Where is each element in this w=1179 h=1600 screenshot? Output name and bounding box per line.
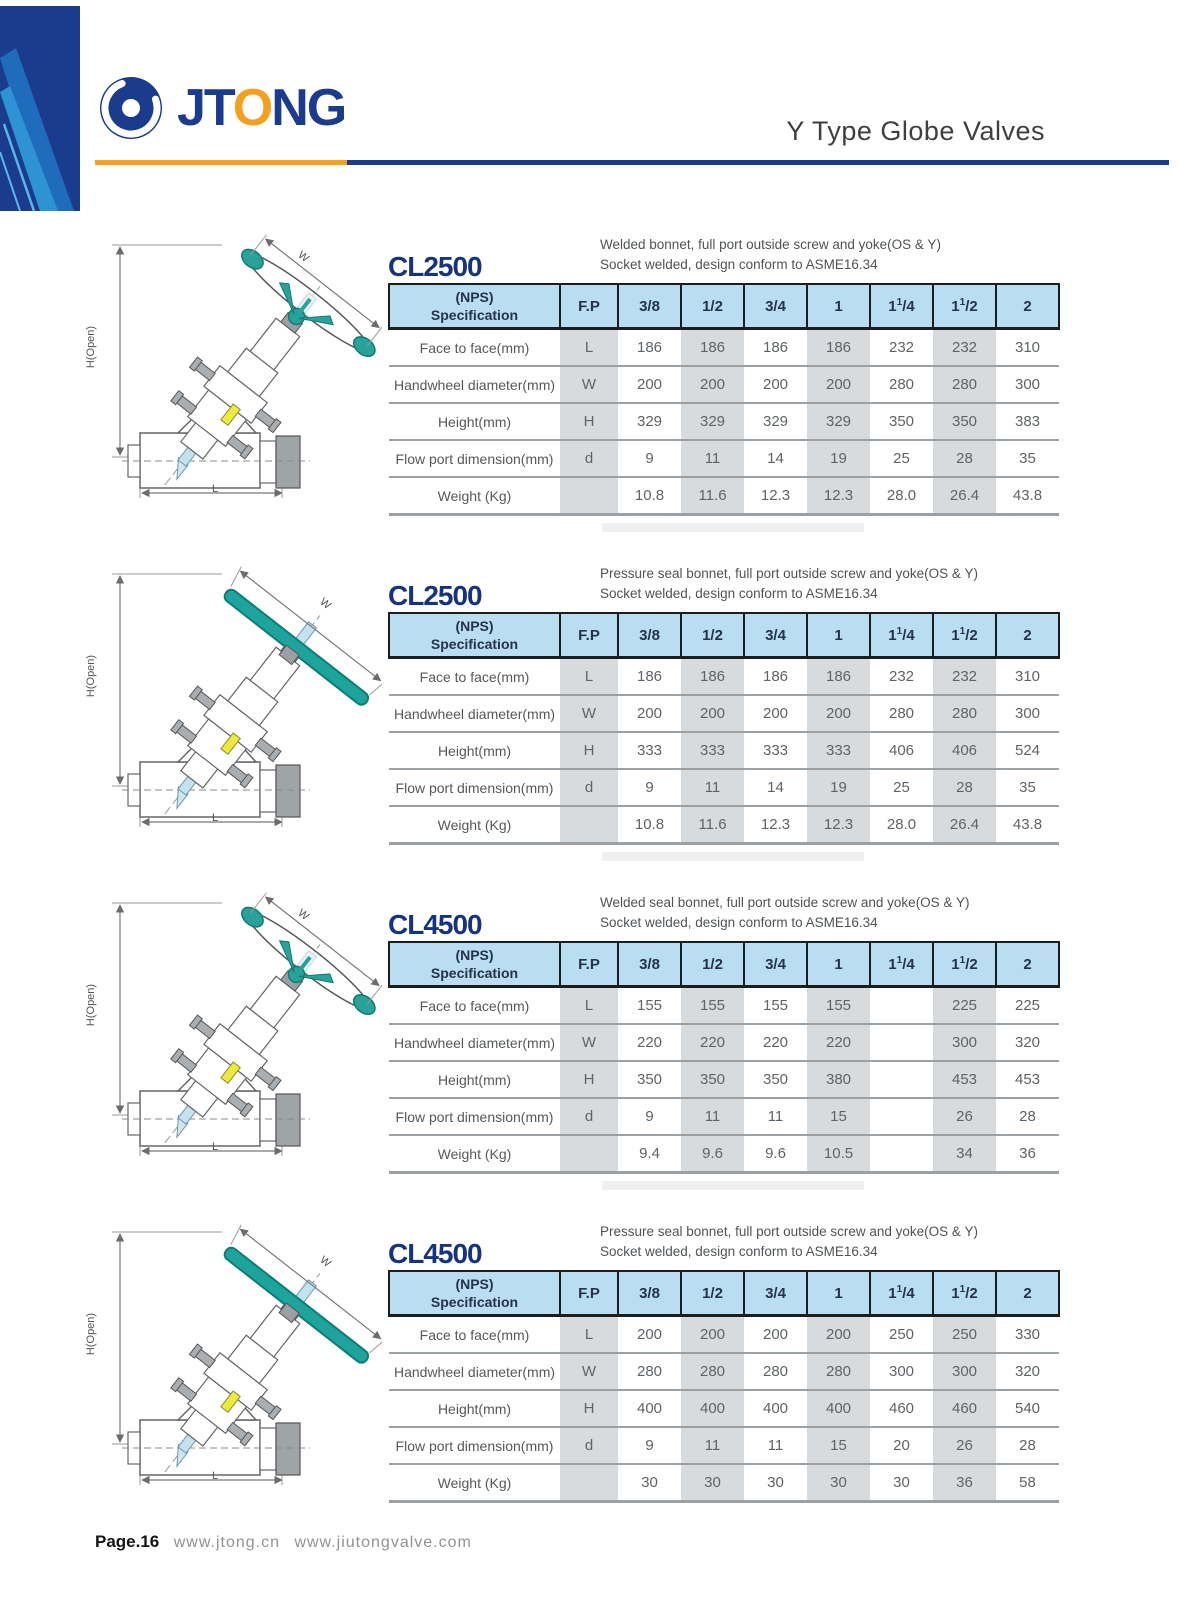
data-cell: 280 <box>870 366 933 403</box>
section-cl2500-pressure-seal: H(Open) L W CL2500 Pressure seal bonnet,… <box>82 534 1097 852</box>
data-cell: 280 <box>807 1353 870 1390</box>
fp-cell: d <box>560 440 618 477</box>
table-row: Flow port dimension(mm)d9111419252835 <box>389 769 1059 806</box>
col-header-size: 11/2 <box>933 284 996 329</box>
model-title: CL2500 <box>388 580 482 612</box>
data-cell: 10.8 <box>618 477 681 515</box>
row-label: Flow port dimension(mm) <box>389 440 560 477</box>
spec-table-wrap: (NPS)SpecificationF.P3/81/23/4111/411/22… <box>388 941 1060 1174</box>
row-label: Weight (Kg) <box>389 1135 560 1173</box>
fp-cell: W <box>560 1024 618 1061</box>
data-cell: 186 <box>807 658 870 696</box>
table-row: Height(mm)H329329329329350350383 <box>389 403 1059 440</box>
page-title: Y Type Globe Valves <box>700 116 1045 147</box>
data-cell: 35 <box>996 440 1059 477</box>
orange-rule <box>95 160 347 165</box>
data-cell: 280 <box>933 366 996 403</box>
row-label: Height(mm) <box>389 1061 560 1098</box>
data-cell: 155 <box>744 987 807 1025</box>
table-row: Handwheel diameter(mm)W20020020020028028… <box>389 695 1059 732</box>
data-cell: 155 <box>681 987 744 1025</box>
fp-cell: H <box>560 1390 618 1427</box>
table-row: Flow port dimension(mm)d9111419252835 <box>389 440 1059 477</box>
corner-stripes-decoration <box>0 6 80 211</box>
row-label: Flow port dimension(mm) <box>389 1098 560 1135</box>
data-cell: 300 <box>933 1024 996 1061</box>
navy-rule <box>347 160 1169 165</box>
row-label: Face to face(mm) <box>389 658 560 696</box>
fp-cell: L <box>560 658 618 696</box>
header-row: (NPS)SpecificationF.P3/81/23/4111/411/22 <box>389 1271 1059 1316</box>
table-row: Flow port dimension(mm)d91111152628 <box>389 1098 1059 1135</box>
description-line-1: Pressure seal bonnet, full port outside … <box>600 1222 978 1242</box>
data-cell: 200 <box>807 366 870 403</box>
data-cell: 333 <box>807 732 870 769</box>
fp-cell: H <box>560 403 618 440</box>
brand-pre: JT <box>177 79 233 137</box>
fp-cell: d <box>560 1098 618 1135</box>
description-line-1: Welded bonnet, full port outside screw a… <box>600 235 941 255</box>
data-cell: 26 <box>933 1098 996 1135</box>
page-footer: Page.16 www.jtong.cn www.jiutongvalve.co… <box>95 1532 472 1552</box>
data-cell <box>870 1098 933 1135</box>
data-cell: 453 <box>933 1061 996 1098</box>
col-header-fp: F.P <box>560 942 618 987</box>
data-cell: 186 <box>618 658 681 696</box>
data-cell: 28.0 <box>870 806 933 844</box>
row-label: Flow port dimension(mm) <box>389 769 560 806</box>
table-row: Handwheel diameter(mm)W22022022022030032… <box>389 1024 1059 1061</box>
table-row: Face to face(mm)L200200200200250250330 <box>389 1316 1059 1354</box>
data-cell: 9 <box>618 769 681 806</box>
data-cell: 200 <box>618 366 681 403</box>
data-cell: 58 <box>996 1464 1059 1502</box>
data-cell: 186 <box>618 329 681 367</box>
fp-cell: L <box>560 1316 618 1354</box>
section-cl4500-pressure-seal: H(Open) L W CL4500 Pressure seal bonnet,… <box>82 1192 1097 1510</box>
data-cell: 9.6 <box>744 1135 807 1173</box>
col-header-size: 2 <box>996 613 1059 658</box>
data-cell: 15 <box>807 1098 870 1135</box>
data-cell: 43.8 <box>996 477 1059 515</box>
table-row: Face to face(mm)L186186186186232232310 <box>389 658 1059 696</box>
dim-label-height: H(Open) <box>85 984 97 1026</box>
spec-table-wrap: (NPS)SpecificationF.P3/81/23/4111/411/22… <box>388 1270 1060 1503</box>
valve-schematic-icon <box>82 205 382 505</box>
data-cell: 28 <box>996 1098 1059 1135</box>
data-cell: 36 <box>996 1135 1059 1173</box>
section-cl4500-welded-seal: H(Open) L W CL4500 Welded seal bonnet, f… <box>82 863 1097 1181</box>
data-cell: 26.4 <box>933 806 996 844</box>
data-cell: 30 <box>618 1464 681 1502</box>
data-cell: 19 <box>807 440 870 477</box>
data-cell: 28.0 <box>870 477 933 515</box>
valve-drawing-handwheel: H(Open) L W <box>82 205 382 505</box>
data-cell: 200 <box>618 695 681 732</box>
data-cell: 320 <box>996 1353 1059 1390</box>
data-cell: 300 <box>996 695 1059 732</box>
data-cell: 25 <box>870 769 933 806</box>
data-cell <box>870 987 933 1025</box>
data-cell: 12.3 <box>744 806 807 844</box>
header-row: (NPS)SpecificationF.P3/81/23/4111/411/22 <box>389 613 1059 658</box>
data-cell: 232 <box>870 329 933 367</box>
fp-cell: L <box>560 987 618 1025</box>
data-cell: 220 <box>744 1024 807 1061</box>
description-line-2: Socket welded, design conform to ASME16.… <box>600 1242 978 1262</box>
data-cell: 28 <box>933 440 996 477</box>
model-title: CL4500 <box>388 1238 482 1270</box>
col-header-size: 1/2 <box>681 284 744 329</box>
data-cell: 9 <box>618 1427 681 1464</box>
row-label: Handwheel diameter(mm) <box>389 366 560 403</box>
table-row: Weight (Kg)10.811.612.312.328.026.443.8 <box>389 806 1059 844</box>
data-cell: 155 <box>807 987 870 1025</box>
data-cell: 34 <box>933 1135 996 1173</box>
data-cell: 200 <box>807 695 870 732</box>
brand-wordmark: JTONG <box>177 82 345 134</box>
data-cell: 11 <box>681 1427 744 1464</box>
fp-cell <box>560 477 618 515</box>
valve-schematic-icon <box>82 1192 382 1492</box>
data-cell: 333 <box>681 732 744 769</box>
data-cell: 300 <box>996 366 1059 403</box>
data-cell: 383 <box>996 403 1059 440</box>
col-header-size: 2 <box>996 942 1059 987</box>
col-header-size: 1/2 <box>681 942 744 987</box>
table-row: Weight (Kg)30303030303658 <box>389 1464 1059 1502</box>
spec-table: (NPS)SpecificationF.P3/81/23/4111/411/22… <box>388 612 1060 845</box>
data-cell: 200 <box>681 1316 744 1354</box>
row-label: Handwheel diameter(mm) <box>389 1024 560 1061</box>
description-line-1: Pressure seal bonnet, full port outside … <box>600 564 978 584</box>
header-row: (NPS)SpecificationF.P3/81/23/4111/411/22 <box>389 284 1059 329</box>
valve-schematic-icon <box>82 534 382 834</box>
col-header-size: 1 <box>807 284 870 329</box>
data-cell: 11 <box>681 769 744 806</box>
table-row: Flow port dimension(mm)d9111115202628 <box>389 1427 1059 1464</box>
data-cell: 333 <box>618 732 681 769</box>
model-description: Welded seal bonnet, full port outside sc… <box>600 893 969 934</box>
logo: JTONG <box>95 72 345 144</box>
row-label: Weight (Kg) <box>389 806 560 844</box>
data-cell: 232 <box>933 329 996 367</box>
col-header-size: 11/2 <box>933 942 996 987</box>
data-cell: 300 <box>933 1353 996 1390</box>
row-label: Weight (Kg) <box>389 1464 560 1502</box>
data-cell: 35 <box>996 769 1059 806</box>
data-cell: 186 <box>744 658 807 696</box>
data-cell: 460 <box>933 1390 996 1427</box>
data-cell: 250 <box>933 1316 996 1354</box>
col-header-size: 11/4 <box>870 1271 933 1316</box>
col-header-spec: (NPS)Specification <box>389 613 560 658</box>
data-cell: 350 <box>618 1061 681 1098</box>
col-header-size: 3/8 <box>618 1271 681 1316</box>
data-cell: 200 <box>618 1316 681 1354</box>
data-cell: 280 <box>618 1353 681 1390</box>
data-cell <box>870 1024 933 1061</box>
data-cell: 280 <box>870 695 933 732</box>
description-line-2: Socket welded, design conform to ASME16.… <box>600 255 941 275</box>
data-cell: 10.8 <box>618 806 681 844</box>
col-header-size: 3/4 <box>744 942 807 987</box>
fp-cell: d <box>560 769 618 806</box>
data-cell: 220 <box>807 1024 870 1061</box>
data-cell: 12.3 <box>744 477 807 515</box>
data-cell: 14 <box>744 769 807 806</box>
spec-table-wrap: (NPS)SpecificationF.P3/81/23/4111/411/22… <box>388 612 1060 845</box>
data-cell: 232 <box>933 658 996 696</box>
dim-label-length: L <box>212 483 218 495</box>
data-cell: 200 <box>807 1316 870 1354</box>
data-cell: 200 <box>744 695 807 732</box>
data-cell: 30 <box>744 1464 807 1502</box>
data-cell: 11 <box>681 440 744 477</box>
row-label: Handwheel diameter(mm) <box>389 695 560 732</box>
data-cell: 350 <box>681 1061 744 1098</box>
data-cell: 186 <box>807 329 870 367</box>
fp-cell: W <box>560 366 618 403</box>
scan-artifact <box>602 852 864 861</box>
header-row: (NPS)SpecificationF.P3/81/23/4111/411/22 <box>389 942 1059 987</box>
data-cell: 186 <box>681 329 744 367</box>
col-header-size: 11/4 <box>870 613 933 658</box>
table-row: Height(mm)H350350350380453453 <box>389 1061 1059 1098</box>
data-cell: 9 <box>618 440 681 477</box>
col-header-fp: F.P <box>560 613 618 658</box>
col-header-size: 11/4 <box>870 284 933 329</box>
data-cell: 400 <box>618 1390 681 1427</box>
fp-cell: d <box>560 1427 618 1464</box>
valve-drawing-tbar: H(Open) L W <box>82 1192 382 1492</box>
data-cell: 330 <box>996 1316 1059 1354</box>
col-header-size: 3/4 <box>744 613 807 658</box>
data-cell: 11 <box>744 1427 807 1464</box>
dim-label-length: L <box>212 812 218 824</box>
data-cell: 11.6 <box>681 806 744 844</box>
table-row: Handwheel diameter(mm)W28028028028030030… <box>389 1353 1059 1390</box>
table-row: Face to face(mm)L155155155155225225 <box>389 987 1059 1025</box>
data-cell: 333 <box>744 732 807 769</box>
data-cell: 232 <box>870 658 933 696</box>
col-header-spec: (NPS)Specification <box>389 1271 560 1316</box>
data-cell: 15 <box>807 1427 870 1464</box>
data-cell: 524 <box>996 732 1059 769</box>
row-label: Weight (Kg) <box>389 477 560 515</box>
data-cell: 329 <box>681 403 744 440</box>
description-line-2: Socket welded, design conform to ASME16.… <box>600 584 978 604</box>
table-row: Handwheel diameter(mm)W20020020020028028… <box>389 366 1059 403</box>
data-cell: 220 <box>681 1024 744 1061</box>
data-cell: 225 <box>933 987 996 1025</box>
fp-cell: L <box>560 329 618 367</box>
page-number: Page.16 <box>95 1532 159 1551</box>
data-cell: 280 <box>933 695 996 732</box>
table-row: Height(mm)H400400400400460460540 <box>389 1390 1059 1427</box>
data-cell: 28 <box>933 769 996 806</box>
row-label: Face to face(mm) <box>389 329 560 367</box>
scan-artifact <box>602 1181 864 1190</box>
data-cell: 43.8 <box>996 806 1059 844</box>
data-cell: 200 <box>744 366 807 403</box>
data-cell: 28 <box>996 1427 1059 1464</box>
data-cell: 30 <box>681 1464 744 1502</box>
data-cell: 280 <box>744 1353 807 1390</box>
col-header-size: 1/2 <box>681 613 744 658</box>
data-cell: 200 <box>681 366 744 403</box>
row-label: Height(mm) <box>389 1390 560 1427</box>
data-cell: 200 <box>744 1316 807 1354</box>
table-row: Weight (Kg)10.811.612.312.328.026.443.8 <box>389 477 1059 515</box>
fp-cell: H <box>560 732 618 769</box>
row-label: Face to face(mm) <box>389 987 560 1025</box>
col-header-size: 11/4 <box>870 942 933 987</box>
description-line-2: Socket welded, design conform to ASME16.… <box>600 913 969 933</box>
model-title: CL2500 <box>388 251 482 283</box>
col-header-size: 1 <box>807 613 870 658</box>
data-cell: 350 <box>933 403 996 440</box>
data-cell: 329 <box>618 403 681 440</box>
col-header-size: 3/8 <box>618 613 681 658</box>
data-cell: 9.4 <box>618 1135 681 1173</box>
col-header-size: 2 <box>996 1271 1059 1316</box>
col-header-size: 1/2 <box>681 1271 744 1316</box>
data-cell: 350 <box>870 403 933 440</box>
data-cell: 30 <box>807 1464 870 1502</box>
fp-cell <box>560 1135 618 1173</box>
col-header-size: 3/4 <box>744 1271 807 1316</box>
data-cell: 11 <box>681 1098 744 1135</box>
data-cell: 453 <box>996 1061 1059 1098</box>
col-header-size: 11/2 <box>933 1271 996 1316</box>
data-cell: 280 <box>681 1353 744 1390</box>
data-cell: 30 <box>870 1464 933 1502</box>
col-header-size: 2 <box>996 284 1059 329</box>
data-cell: 20 <box>870 1427 933 1464</box>
website-url-2: www.jiutongvalve.com <box>294 1534 471 1551</box>
dim-label-length: L <box>212 1470 218 1482</box>
section-cl2500-welded: H(Open) L W CL2500 Welded bonnet, full p… <box>82 205 1097 523</box>
table-row: Weight (Kg)9.49.69.610.53436 <box>389 1135 1059 1173</box>
col-header-spec: (NPS)Specification <box>389 284 560 329</box>
data-cell: 9 <box>618 1098 681 1135</box>
data-cell: 14 <box>744 440 807 477</box>
data-cell: 220 <box>618 1024 681 1061</box>
fp-cell <box>560 1464 618 1502</box>
row-label: Flow port dimension(mm) <box>389 1427 560 1464</box>
description-line-1: Welded seal bonnet, full port outside sc… <box>600 893 969 913</box>
row-label: Handwheel diameter(mm) <box>389 1353 560 1390</box>
col-header-fp: F.P <box>560 1271 618 1316</box>
data-cell: 186 <box>744 329 807 367</box>
data-cell: 400 <box>681 1390 744 1427</box>
col-header-size: 3/8 <box>618 284 681 329</box>
spec-table-wrap: (NPS)SpecificationF.P3/81/23/4111/411/22… <box>388 283 1060 516</box>
data-cell: 12.3 <box>807 806 870 844</box>
valve-drawing-handwheel: H(Open) L W <box>82 863 382 1163</box>
model-title: CL4500 <box>388 909 482 941</box>
data-cell: 380 <box>807 1061 870 1098</box>
col-header-size: 11/2 <box>933 613 996 658</box>
table-row: Height(mm)H333333333333406406524 <box>389 732 1059 769</box>
data-cell: 310 <box>996 658 1059 696</box>
col-header-size: 1 <box>807 1271 870 1316</box>
fp-cell: H <box>560 1061 618 1098</box>
data-cell: 9.6 <box>681 1135 744 1173</box>
data-cell: 26.4 <box>933 477 996 515</box>
dim-label-height: H(Open) <box>85 655 97 697</box>
data-cell: 25 <box>870 440 933 477</box>
col-header-fp: F.P <box>560 284 618 329</box>
data-cell: 250 <box>870 1316 933 1354</box>
data-cell: 329 <box>807 403 870 440</box>
col-header-size: 3/4 <box>744 284 807 329</box>
data-cell: 329 <box>744 403 807 440</box>
data-cell: 11.6 <box>681 477 744 515</box>
website-url-1: www.jtong.cn <box>174 1534 280 1551</box>
table-row: Face to face(mm)L186186186186232232310 <box>389 329 1059 367</box>
data-cell: 10.5 <box>807 1135 870 1173</box>
row-label: Height(mm) <box>389 403 560 440</box>
data-cell: 350 <box>744 1061 807 1098</box>
row-label: Face to face(mm) <box>389 1316 560 1354</box>
spec-table: (NPS)SpecificationF.P3/81/23/4111/411/22… <box>388 941 1060 1174</box>
data-cell: 540 <box>996 1390 1059 1427</box>
data-cell: 406 <box>933 732 996 769</box>
brand-post: NG <box>271 79 345 137</box>
model-description: Pressure seal bonnet, full port outside … <box>600 564 978 605</box>
col-header-size: 1 <box>807 942 870 987</box>
fp-cell <box>560 806 618 844</box>
fp-cell: W <box>560 1353 618 1390</box>
data-cell: 406 <box>870 732 933 769</box>
col-header-size: 3/8 <box>618 942 681 987</box>
data-cell: 36 <box>933 1464 996 1502</box>
data-cell: 11 <box>744 1098 807 1135</box>
data-cell: 400 <box>807 1390 870 1427</box>
valve-drawing-tbar: H(Open) L W <box>82 534 382 834</box>
data-cell: 200 <box>681 695 744 732</box>
data-cell <box>870 1061 933 1098</box>
model-description: Welded bonnet, full port outside screw a… <box>600 235 941 276</box>
dim-label-height: H(Open) <box>85 326 97 368</box>
data-cell: 320 <box>996 1024 1059 1061</box>
data-cell: 225 <box>996 987 1059 1025</box>
col-header-spec: (NPS)Specification <box>389 942 560 987</box>
valve-schematic-icon <box>82 863 382 1163</box>
dim-label-length: L <box>212 1141 218 1153</box>
brand-o: O <box>233 79 271 137</box>
fp-cell: W <box>560 695 618 732</box>
data-cell: 186 <box>681 658 744 696</box>
data-cell: 400 <box>744 1390 807 1427</box>
scan-artifact <box>602 523 864 532</box>
row-label: Height(mm) <box>389 732 560 769</box>
data-cell: 300 <box>870 1353 933 1390</box>
data-cell: 26 <box>933 1427 996 1464</box>
logo-emblem-icon <box>95 72 167 144</box>
data-cell: 155 <box>618 987 681 1025</box>
data-cell: 460 <box>870 1390 933 1427</box>
spec-table: (NPS)SpecificationF.P3/81/23/4111/411/22… <box>388 283 1060 516</box>
data-cell: 19 <box>807 769 870 806</box>
data-cell: 12.3 <box>807 477 870 515</box>
spec-table: (NPS)SpecificationF.P3/81/23/4111/411/22… <box>388 1270 1060 1503</box>
model-description: Pressure seal bonnet, full port outside … <box>600 1222 978 1263</box>
data-cell: 310 <box>996 329 1059 367</box>
data-cell <box>870 1135 933 1173</box>
